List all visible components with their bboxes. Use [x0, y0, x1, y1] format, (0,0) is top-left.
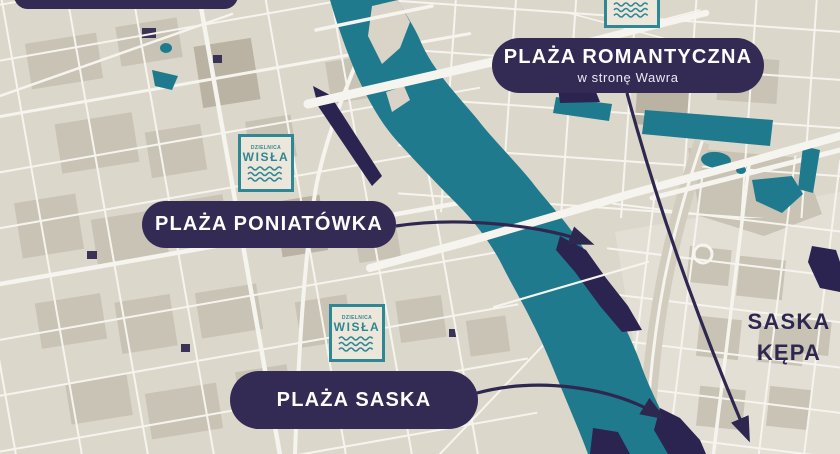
wisla-badge-top: DZIELNICA WISŁA [604, 0, 660, 28]
cut-off-label-pill [14, 0, 238, 9]
pill-plaza-romantyczna: PLAŻA ROMANTYCZNA w stronę Wawra [492, 38, 764, 93]
badge-brand-text: WISŁA [243, 152, 290, 163]
waves-icon [247, 165, 285, 182]
pill-plaza-saska: PLAŻA SASKA [230, 371, 478, 429]
pill-subtitle: w stronę Wawra [577, 70, 678, 85]
region-label-line1: SASKA [733, 306, 840, 337]
waves-icon [338, 335, 376, 352]
waves-icon [613, 1, 651, 18]
wisla-badge-lower: DZIELNICA WISŁA [329, 304, 385, 362]
pill-plaza-poniatowka: PLAŻA PONIATÓWKA [142, 201, 396, 248]
pill-title: PLAŻA ROMANTYCZNA [504, 46, 753, 69]
region-label-line2: KĘPA [733, 337, 840, 368]
pill-title: PLAŻA PONIATÓWKA [155, 213, 383, 236]
region-label-saska-kepa: SASKA KĘPA [733, 306, 840, 368]
badge-brand-text: WISŁA [334, 322, 381, 333]
warsaw-beaches-map: PLAŻA ROMANTYCZNA w stronę Wawra PLAŻA P… [0, 0, 840, 454]
wisla-badge-middle: DZIELNICA WISŁA [238, 134, 294, 192]
pill-title: PLAŻA SASKA [277, 389, 432, 412]
